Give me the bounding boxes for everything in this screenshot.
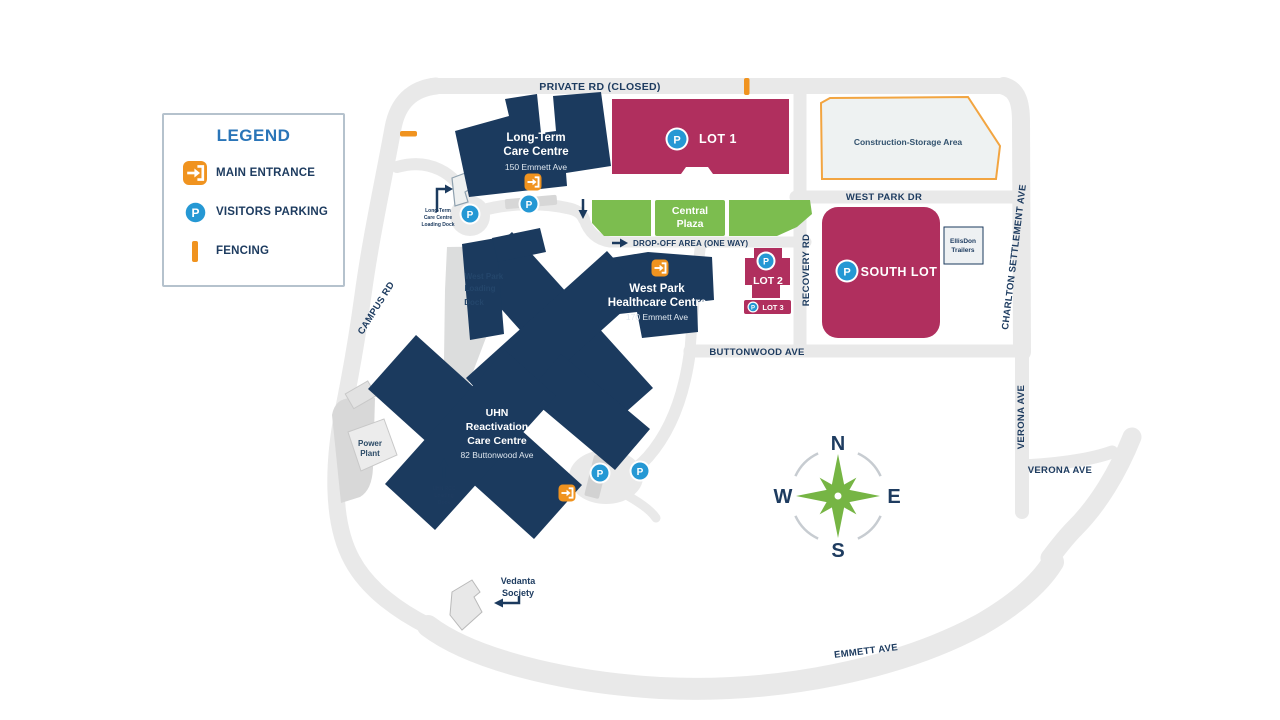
legend-row-fencing: FENCING — [183, 239, 343, 263]
verona-vertical-label-g: VERONA AVE — [1016, 385, 1027, 449]
ltc-label-1: Long-Term — [506, 132, 565, 144]
visitors-parking-icon: P — [183, 200, 207, 224]
parking-letter: P — [637, 467, 644, 478]
parking-letter: P — [597, 469, 604, 480]
fence-north — [744, 78, 750, 95]
parking-icon-lot2: P — [757, 252, 776, 271]
south-lot-label: SOUTH LOT — [861, 265, 938, 279]
ellisdon-label-1: EllisDon — [950, 238, 976, 245]
wphc-north-wing — [492, 228, 546, 262]
ltc-dock-label-2: Care Centre — [424, 215, 453, 221]
wp-dock-label-1: West Park — [465, 272, 504, 281]
legend-row-main-entrance: MAIN ENTRANCE — [183, 161, 343, 185]
buttonwood-label: BUTTONWOOD AVE — [709, 347, 804, 358]
parking-icon-roundabout-1: P — [460, 204, 481, 225]
ltc-dock-label-1: Long-Term — [425, 208, 451, 214]
compass-s: S — [831, 540, 844, 562]
compass-rose: N E S W — [774, 433, 901, 562]
ltc-address: 150 Emmett Ave — [505, 162, 567, 172]
lot1-label: LOT 1 — [699, 132, 737, 146]
uhn-label-1: UHN — [486, 407, 509, 419]
parking-letter: P — [191, 205, 199, 219]
map-canvas: Central Plaza LOT 1 LOT 2 LOT 3 SOUTH LO… — [0, 0, 1280, 720]
central-plaza-label-1: Central — [672, 205, 708, 217]
vedanta-building — [450, 580, 482, 630]
construction-label: Construction-Storage Area — [854, 137, 963, 147]
ltc-label-2: Care Centre — [503, 146, 568, 158]
compass-w: W — [774, 486, 793, 508]
legend-label-fencing: FENCING — [216, 245, 269, 257]
uhn-label-2: Reactivation — [466, 421, 528, 433]
uhn-address: 82 Buttonwood Ave — [460, 450, 533, 460]
central-plaza-greens: Central Plaza — [592, 200, 812, 236]
parking-icon-lot1: P — [666, 128, 689, 151]
wp-dock-label-3: Dock — [464, 298, 484, 307]
road-uhn-loop-tail — [628, 496, 656, 518]
parking-letter: P — [526, 200, 533, 211]
legend-label-main-entrance: MAIN ENTRANCE — [216, 167, 315, 179]
vedanta-label-1: Vedanta — [501, 576, 537, 586]
road-verona-branch — [1022, 452, 1112, 466]
west-park-dr-label: WEST PARK DR — [846, 192, 922, 203]
central-plaza-label-2: Plaza — [677, 218, 704, 230]
ellisdon-trailers-box — [944, 227, 983, 264]
lot2-label: LOT 2 — [753, 275, 783, 287]
legend-title: LEGEND — [164, 126, 343, 146]
uhn-dock-label-3: Dock — [438, 500, 450, 506]
parking-letter: P — [467, 210, 474, 221]
wphc-address: 170 Emmett Ave — [626, 312, 688, 322]
private-rd-label: PRIVATE RD (CLOSED) — [539, 81, 660, 93]
recovery-rd-label-g: RECOVERY RD — [801, 234, 812, 306]
lot3-label: LOT 3 — [762, 303, 783, 312]
uhn-dock-label-2: Loading — [434, 493, 453, 499]
plaza-green-west — [592, 200, 651, 236]
power-plant-label-2: Plant — [360, 449, 380, 458]
uhn-dock-label-1: UHN RCC — [432, 486, 455, 492]
parking-icon-lot3: P — [748, 302, 759, 313]
parking-icon-uhn-1: P — [590, 463, 611, 484]
ltc-dock-label-3: Loading Dock — [421, 222, 454, 228]
power-plant-label-1: Power — [358, 439, 382, 448]
wphc-label-2: Healthcare Centre — [608, 297, 706, 309]
campus-map: Central Plaza LOT 1 LOT 2 LOT 3 SOUTH LO… — [0, 0, 1280, 720]
drop-off-label: DROP-OFF AREA (ONE WAY) — [633, 239, 748, 248]
parking-letter: P — [763, 257, 769, 267]
verona-vertical-label: VERONA AVE — [1016, 385, 1027, 449]
recovery-rd-label: RECOVERY RD — [801, 234, 812, 306]
fence-west — [400, 131, 417, 137]
compass-n: N — [831, 433, 845, 455]
parking-letter: P — [751, 306, 755, 312]
legend-row-visitors-parking: P VISITORS PARKING — [183, 200, 343, 224]
uhn-label-3: Care Centre — [467, 435, 527, 447]
main-entrance-icon — [183, 161, 207, 185]
verona-horizontal-label: VERONA AVE — [1028, 465, 1092, 476]
parking-icon-uhn-2: P — [630, 461, 651, 482]
vedanta-arrow-head — [494, 599, 503, 608]
wp-dock-label-2: Loading — [464, 284, 495, 293]
main-entrance-icon-uhn — [559, 485, 576, 502]
wphc-label-1: West Park — [629, 283, 685, 295]
main-entrance-icon-ltc — [525, 174, 542, 191]
parking-icon-roundabout-2: P — [519, 194, 540, 215]
parking-icon-south-lot: P — [836, 260, 859, 283]
compass-e: E — [887, 486, 900, 508]
compass-hub — [834, 492, 843, 501]
parking-letter: P — [673, 135, 680, 147]
fencing-icon — [183, 239, 207, 263]
parking-letter: P — [843, 267, 850, 279]
ellisdon-label-2: Trailers — [951, 247, 975, 254]
legend-label-visitors-parking: VISITORS PARKING — [216, 206, 328, 218]
legend-box: LEGEND MAIN ENTRANCE P VISITORS PARKING … — [162, 113, 345, 287]
main-entrance-icon-wphc — [652, 260, 669, 277]
